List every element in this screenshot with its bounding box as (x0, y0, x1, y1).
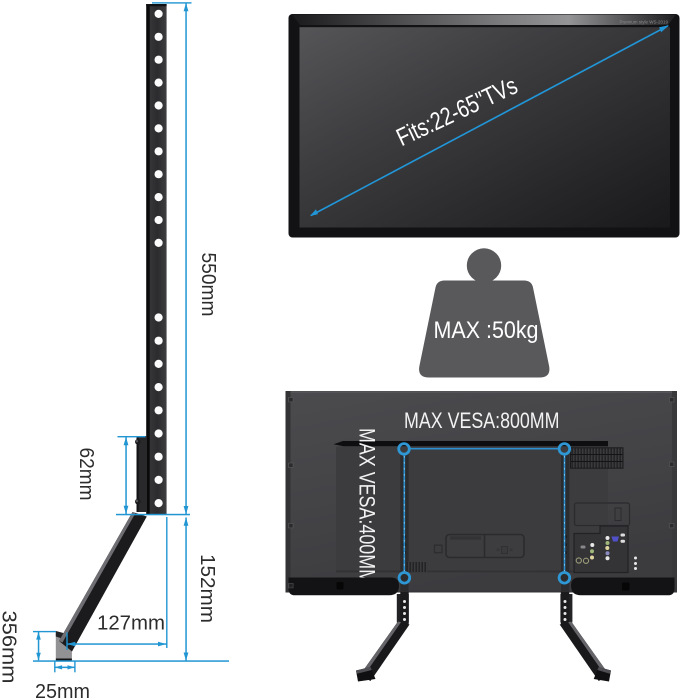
svg-text:356mm: 356mm (0, 611, 20, 684)
svg-text:550mm: 550mm (197, 253, 219, 317)
svg-text:62mm: 62mm (75, 448, 97, 501)
svg-text:25mm: 25mm (35, 681, 90, 700)
svg-text:MAX VESA:800MM: MAX VESA:800MM (404, 408, 560, 433)
svg-text:Premium style WS-2019: Premium style WS-2019 (619, 20, 668, 25)
svg-text:152mm: 152mm (196, 554, 218, 623)
svg-text:MAX VESA:400MM: MAX VESA:400MM (355, 428, 380, 584)
svg-text:MAX :50kg: MAX :50kg (434, 317, 539, 344)
svg-text:127mm: 127mm (97, 613, 165, 635)
